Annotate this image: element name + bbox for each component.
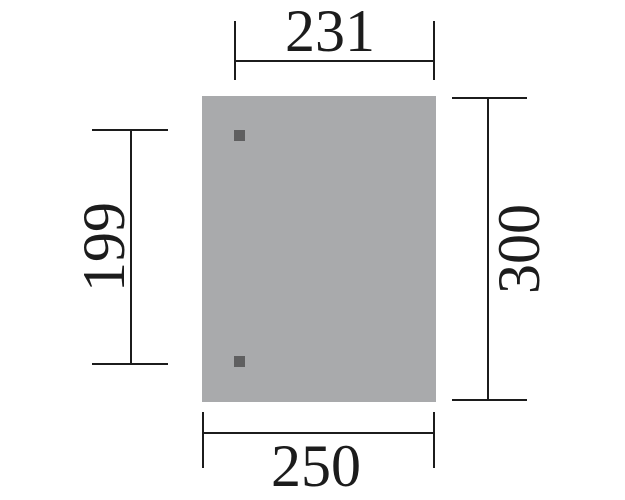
- dimension-diagram: 231 199 300 250: [0, 0, 625, 500]
- post-marker-bottom: [234, 356, 245, 367]
- dimension-bottom-left-tick: [202, 412, 204, 468]
- dimension-label-right: 300: [489, 204, 549, 294]
- dimension-bottom-right-tick: [433, 412, 435, 468]
- dimension-left-top-tick: [92, 129, 168, 131]
- dimension-left-bottom-tick: [92, 363, 168, 365]
- dimension-right-bottom-tick: [452, 399, 527, 401]
- dimension-right-top-tick: [452, 97, 527, 99]
- dimension-label-top: 231: [285, 1, 375, 61]
- post-marker-top: [234, 130, 245, 141]
- dimension-label-bottom: 250: [271, 436, 361, 496]
- dimension-top-left-tick: [234, 21, 236, 80]
- dimension-top-right-tick: [433, 21, 435, 80]
- dimension-label-left: 199: [74, 202, 134, 292]
